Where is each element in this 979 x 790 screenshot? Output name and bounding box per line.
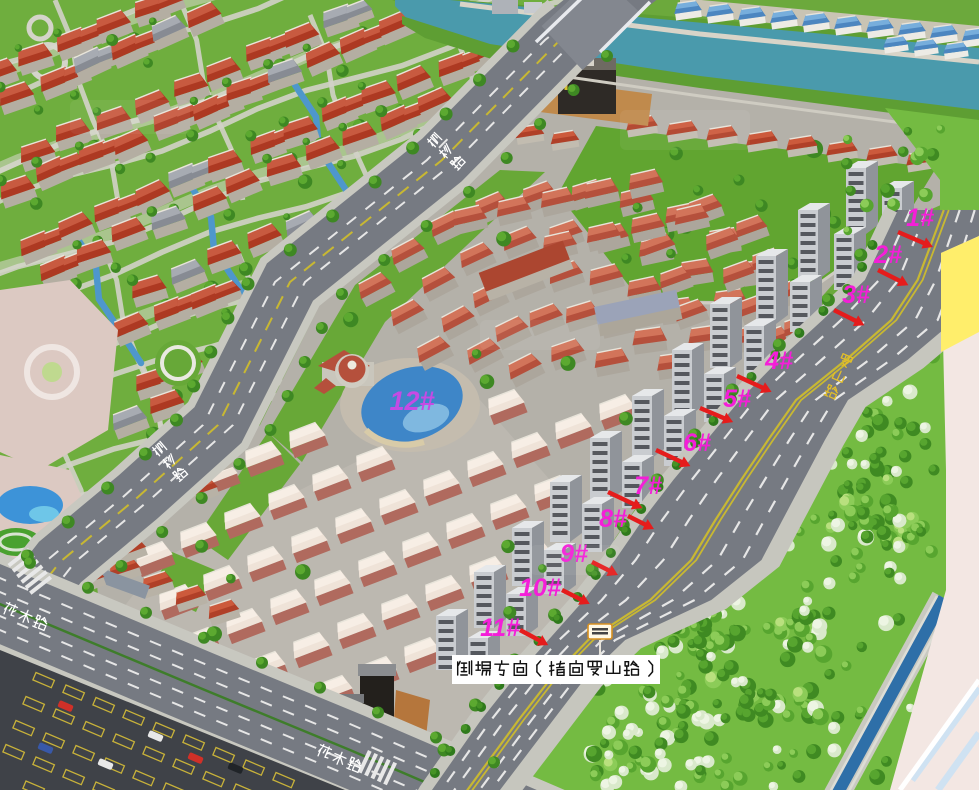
svg-text:8#: 8# (599, 505, 627, 533)
svg-text:2#: 2# (873, 241, 902, 269)
svg-text:7#: 7# (634, 472, 662, 500)
svg-text:11#: 11# (480, 614, 520, 642)
svg-text:12#: 12# (389, 386, 434, 416)
svg-text:6#: 6# (683, 429, 711, 457)
svg-text:4#: 4# (764, 347, 793, 375)
svg-text:3#: 3# (842, 281, 870, 309)
svg-text:5#: 5# (723, 385, 751, 413)
svg-text:10#: 10# (519, 574, 561, 602)
svg-text:1#: 1# (906, 204, 934, 232)
